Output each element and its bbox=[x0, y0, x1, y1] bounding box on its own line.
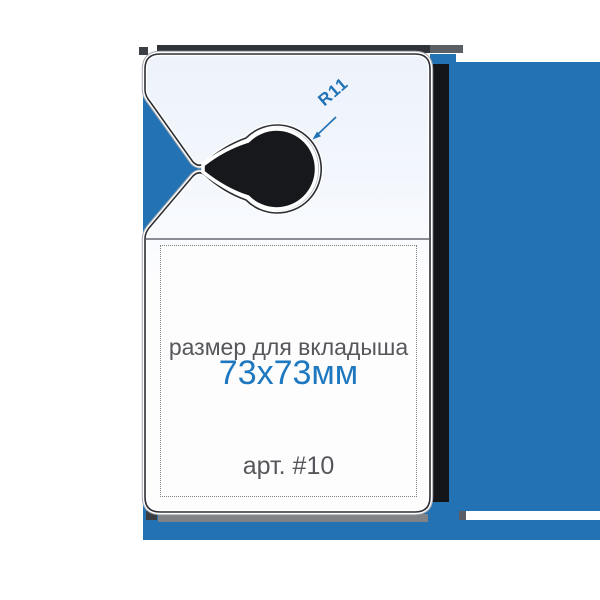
insert-size-value: 73х73мм bbox=[161, 354, 416, 393]
article-number: арт. #10 bbox=[161, 452, 416, 481]
product-diagram-canvas: размер для вкладыша 73х73мм арт. #10 R11 bbox=[0, 0, 600, 600]
insert-area: размер для вкладыша 73х73мм арт. #10 bbox=[160, 245, 417, 497]
